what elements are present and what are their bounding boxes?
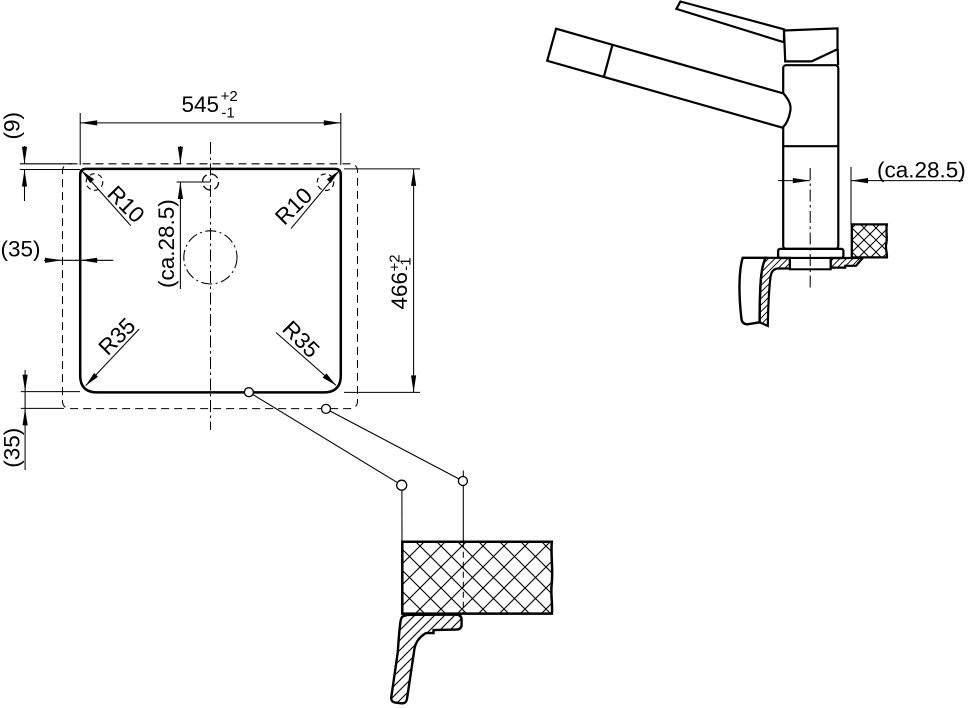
svg-text:466: 466 bbox=[387, 272, 412, 310]
svg-text:(35): (35) bbox=[0, 428, 25, 468]
svg-text:+2: +2 bbox=[221, 88, 238, 105]
svg-text:(ca.28.5): (ca.28.5) bbox=[877, 158, 966, 183]
svg-text:(35): (35) bbox=[1, 236, 41, 261]
svg-text:545: 545 bbox=[182, 92, 220, 117]
svg-text:(9): (9) bbox=[0, 112, 25, 140]
svg-text:-1: -1 bbox=[221, 104, 234, 121]
svg-text:-1: -1 bbox=[398, 257, 415, 270]
svg-text:(ca.28.5): (ca.28.5) bbox=[154, 199, 179, 288]
